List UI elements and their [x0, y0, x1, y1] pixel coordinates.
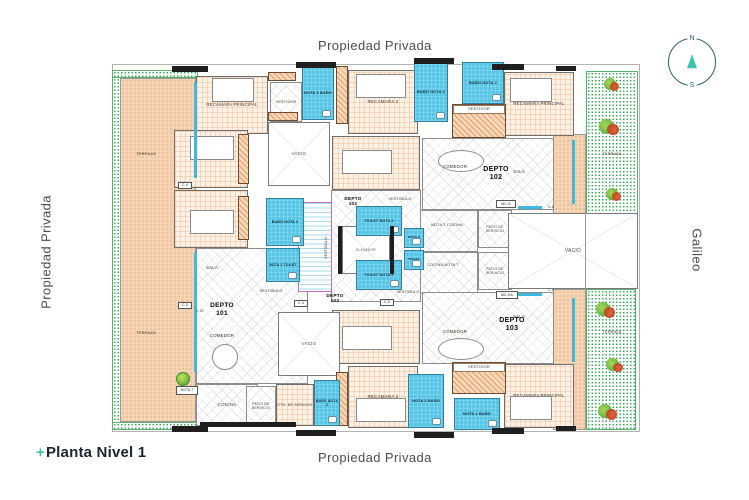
chip-c4: C-4: [178, 182, 192, 189]
wall-top-2: [296, 62, 336, 68]
label-cocina-nota7-103: COCINA NOTA 7: [422, 260, 464, 270]
closet-101-a: [268, 72, 296, 81]
label-terraza-left-bottom: TERRAZA: [124, 329, 168, 337]
plant-2: [596, 116, 622, 142]
patio-servicio-102: PATIO DE SERVICIO: [478, 210, 512, 248]
label-vestibulo-101: VESTIBULO: [250, 287, 292, 295]
wall-core-right: [390, 226, 394, 274]
closet-102: [336, 66, 348, 124]
label-depto-103-entry: DEPTO 103: [324, 291, 346, 305]
bed-recamara-2-103: [356, 398, 406, 422]
table-comedor-101: [212, 344, 238, 370]
plant-5: [604, 356, 626, 378]
label-comedor-103: COMEDOR: [434, 328, 476, 336]
wall-bottom-1: [172, 426, 208, 432]
label-terraza-right-bottom: TERRAZA: [592, 328, 632, 336]
label-c6-bottom: C-6: [544, 287, 558, 294]
vestidor-103: VESTIDOR: [452, 362, 506, 394]
toilet-nota2-core-bottom: TOILET NOTA 2: [356, 260, 402, 290]
toilet-nota2-core-top: TOILET NOTA 2: [356, 206, 402, 236]
bed-recamara-principal-103: [510, 396, 552, 420]
window-right-top: [572, 140, 575, 204]
table-comedor-103: [438, 338, 484, 360]
label-c6-top: C-6: [544, 204, 558, 211]
label-sala-101: SALA: [198, 264, 226, 272]
chip-nota7-101: NOTA 7: [176, 386, 198, 395]
label-depto-102: DEPTO 102: [478, 164, 514, 184]
bed-recamara-2-102: [356, 74, 406, 98]
label-terraza-right-top: TERRAZA: [592, 150, 632, 158]
bed-recamara-1-103: [342, 326, 392, 350]
bano-nota2-102-mid: BAÑO NOTA 2: [414, 62, 448, 122]
bed-recamara-principal-101: [212, 78, 254, 102]
label-depto-101: DEPTO 101: [206, 301, 238, 319]
floor-plan: COCINAPATIO DE SERVICIOCTO. DE SERVICIOV…: [0, 0, 749, 500]
vacio-right: VACIO: [508, 213, 638, 289]
bano-nota2-103-right: NOTA 2 BAÑO: [454, 398, 500, 430]
walkway-right-top: [553, 134, 586, 214]
wall-bottom-3: [414, 432, 454, 438]
window-right-bottom: [572, 298, 575, 362]
toilet-nota2-101: NOTA 2 TOILET: [266, 248, 300, 282]
wall-top-4: [492, 64, 524, 70]
chip-mcs: MC-S: [496, 200, 516, 208]
bed-recamara-1-102: [342, 150, 392, 174]
label-depto-103: DEPTO 103: [494, 315, 530, 335]
label-vestibulo-core: VESTIBULO: [320, 224, 332, 272]
plant-6: [596, 402, 620, 426]
label-nota7-cocina-102: NOTA 7 COCINA: [426, 220, 468, 230]
kitchen-102: [420, 210, 478, 252]
bano-nota2-101-bottom: BAÑO NOTA 2: [314, 380, 340, 426]
patio-servicio-103: PATIO DE SERVICIO: [478, 252, 512, 290]
label-comedor-101: COMEDOR: [200, 332, 244, 340]
chip-c5: C-5: [380, 299, 394, 306]
bano-nota2-103-left: NOTA 2 BAÑO: [408, 374, 444, 428]
label-depto-102-entry: DEPTO 102: [342, 194, 364, 208]
window-mcs: [518, 206, 542, 209]
vacio-top-left: VACIO: [268, 122, 330, 186]
planter-cocina-101: [176, 372, 190, 386]
label-comedor-102: COMEDOR: [434, 163, 476, 171]
wall-top-5: [556, 66, 576, 71]
wall-bottom-0: [200, 422, 296, 427]
bed-recamara-principal-102: [510, 78, 552, 102]
wall-top-3: [414, 58, 454, 64]
cto-servicio-101: CTO. DE SERVICIO: [276, 384, 314, 426]
bano-nota2-101-mid: BAÑO NOTA 2: [266, 198, 304, 246]
vestidor-102: VESTIDOR: [452, 104, 506, 138]
label-vestibulo-bottom: VESTIBULO: [386, 288, 430, 296]
patio-servicio-101: PATIO DE SERVICIO: [246, 386, 276, 426]
plant-3: [604, 186, 624, 206]
wall-top-1: [172, 66, 208, 72]
window-mcsa: [518, 293, 542, 296]
plant-1: [602, 76, 622, 96]
wall-bottom-4: [492, 428, 524, 434]
bed-recamara-2-101: [190, 210, 234, 234]
plant-4: [594, 300, 618, 324]
toilet-core-right: TOILET: [404, 250, 424, 270]
chip-mcsa: MC-SA: [496, 291, 518, 299]
nota2-core-right: NOTA 2: [404, 228, 424, 248]
wall-bottom-5: [556, 426, 576, 431]
vacio-bottom-left: VACIO: [278, 312, 340, 376]
vacio-divider: [585, 213, 586, 289]
chip-c3: C-3: [178, 302, 192, 309]
closet-101-r2: [238, 196, 249, 240]
label-vestibulo-top: VESTIBULO: [378, 195, 422, 203]
wall-bottom-2: [296, 430, 336, 436]
label-terraza-left-top: TERRAZA: [124, 150, 168, 158]
chip-c4b: C-4: [294, 300, 308, 307]
closet-101-b: [268, 112, 298, 121]
window-left-top: [194, 82, 197, 178]
floor-plan-sheet: Propiedad Privada Propiedad Privada Gali…: [0, 0, 749, 500]
closet-101-r1: [238, 134, 249, 184]
bano-nota2-101-top: NOTA 2 BAÑO: [302, 66, 334, 120]
